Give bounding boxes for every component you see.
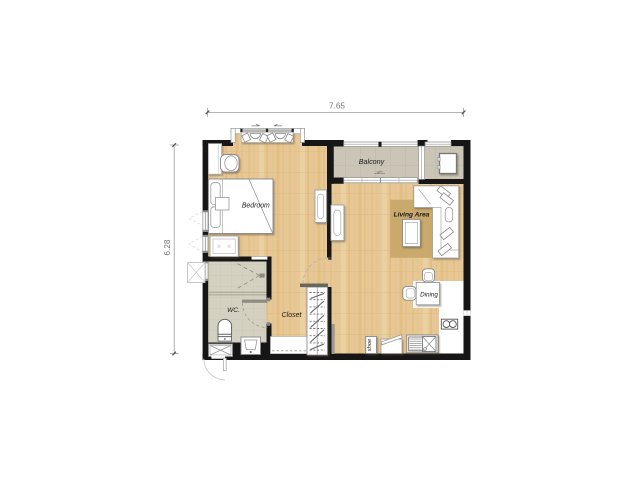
svg-text:Closet: Closet [282, 312, 303, 319]
svg-text:shoe: shoe [367, 338, 373, 351]
svg-text:WC.: WC. [227, 307, 240, 314]
svg-text:6.28: 6.28 [163, 239, 172, 255]
svg-text:Living Area: Living Area [394, 212, 430, 219]
svg-text:7.65: 7.65 [329, 102, 345, 111]
svg-text:Bedroom: Bedroom [242, 202, 270, 209]
svg-text:Balcony: Balcony [359, 157, 385, 166]
svg-text:Dining: Dining [420, 292, 438, 299]
